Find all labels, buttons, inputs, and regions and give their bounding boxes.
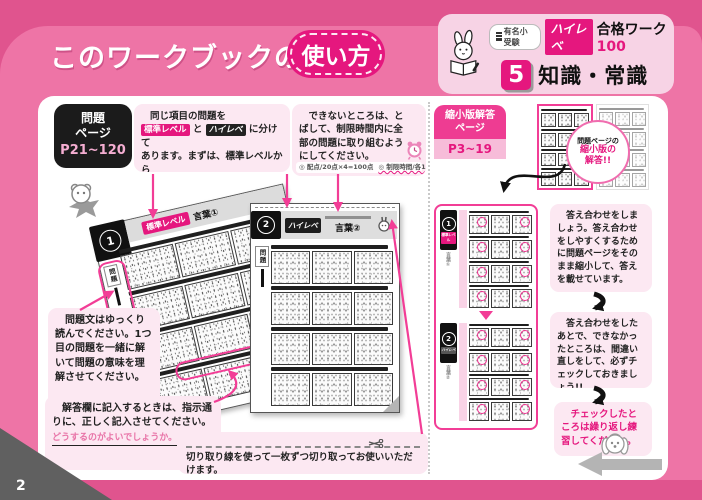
mini-answer-grid	[469, 323, 532, 421]
answer-pages-badge: 縮小版解答ページ P3~19	[434, 105, 506, 169]
content-panel: 問題ページ P21~120 同じ項目の問題を 標準レベル と ハイレベ に分けて…	[38, 96, 668, 480]
usage-title-blob: 使い方	[287, 30, 385, 78]
down-arrow-icon	[479, 311, 493, 320]
dashed-cut-line	[186, 437, 420, 448]
zoom-note-circle: 問題ページの 縮小版の 解答!!	[566, 120, 630, 184]
scissors-icon	[368, 439, 384, 448]
standard-level-badge: 標準レベル	[141, 124, 190, 136]
scoring-note: ◎ 配点/20点×4=100点 ◎ 制限時間/各10分	[296, 162, 422, 173]
answer-frame: 1 標準レベル 言葉① 2 ハイレベ 言葉②	[434, 204, 538, 430]
level-badge: 標準レベル	[141, 211, 191, 234]
volume-number: 5	[501, 60, 531, 90]
publisher-mark-icon	[496, 32, 501, 41]
workbook-usage-page: このワークブックの 使い方 有名小受験 ハイレベ 合格ワーク100 5 知識・常…	[0, 0, 702, 500]
side-tab: 問題	[255, 246, 269, 287]
down-arrow-icon	[594, 294, 603, 308]
page-title-text: 言葉②	[335, 221, 361, 234]
volume-title: 知識・常識	[538, 60, 648, 90]
problem-grid	[271, 244, 393, 406]
page-header: ハイレベ 言葉②	[281, 211, 397, 239]
bubble-time-limit: できないところは、とばして、制限時間内に全部の問題に取り組むようにしてください。…	[292, 104, 426, 176]
page-title: このワークブックの	[50, 36, 302, 75]
rabbit-mascot-icon	[446, 25, 483, 83]
section-divider	[428, 102, 430, 474]
mini-answer-page-1: 1 標準レベル 言葉①	[440, 210, 532, 308]
hireve-level-badge: ハイレベ	[206, 124, 246, 136]
dog-mascot-icon	[598, 432, 634, 462]
mini-page-tab: 2 ハイレベ	[440, 323, 457, 363]
bubble-cut-line: 切り取り線を使って一枚ずつ切り取ってお使いいただけます。	[178, 432, 428, 474]
series-badge: 有名小受験	[489, 24, 541, 50]
hireve-logo: ハイレベ	[545, 19, 592, 55]
page-tab: 2	[251, 211, 281, 239]
level-badge: ハイレベ	[285, 218, 321, 233]
page-title-text: 言葉①	[192, 204, 220, 222]
hamster-mascot-icon	[58, 180, 106, 222]
mini-level-badge: ハイレベ	[441, 347, 456, 354]
answer-pages-range: P3~19	[434, 139, 506, 159]
alarm-clock-icon	[406, 141, 423, 160]
problem-pages-range: P21~120	[54, 143, 132, 158]
mini-level-badge: 標準レベル	[441, 232, 456, 244]
mini-answer-grid	[469, 210, 532, 308]
fold-corner	[383, 396, 399, 412]
workbook-page-front: 2 ハイレベ 言葉② 問題	[250, 203, 400, 413]
brand-panel: 有名小受験 ハイレベ 合格ワーク100 5 知識・常識	[438, 14, 674, 94]
down-arrow-icon	[594, 388, 603, 402]
usage-title-text: 使い方	[302, 37, 371, 71]
rabbit-icon	[375, 216, 393, 234]
mini-page-tab: 1 標準レベル	[440, 210, 457, 250]
mini-answer-page-2: 2 ハイレベ 言葉②	[440, 323, 532, 421]
bubble-levels: 同じ項目の問題を 標準レベル と ハイレベ に分けて あります。まずは、標準レベ…	[134, 104, 290, 172]
bubble-answer-check: 答え合わせをしましょう。答え合わせをしやすくするために問題ページをそのまま縮小し…	[550, 204, 652, 292]
bubble-redo-check: 答え合わせをしたあとで、できなかったところは、間違い直しをして、必ずチェックして…	[550, 312, 652, 388]
cut-line	[255, 207, 395, 208]
page-number: 2	[16, 478, 26, 494]
problem-pages-badge: 問題ページ P21~120	[54, 104, 132, 168]
series-title: 合格ワーク100	[597, 19, 674, 55]
